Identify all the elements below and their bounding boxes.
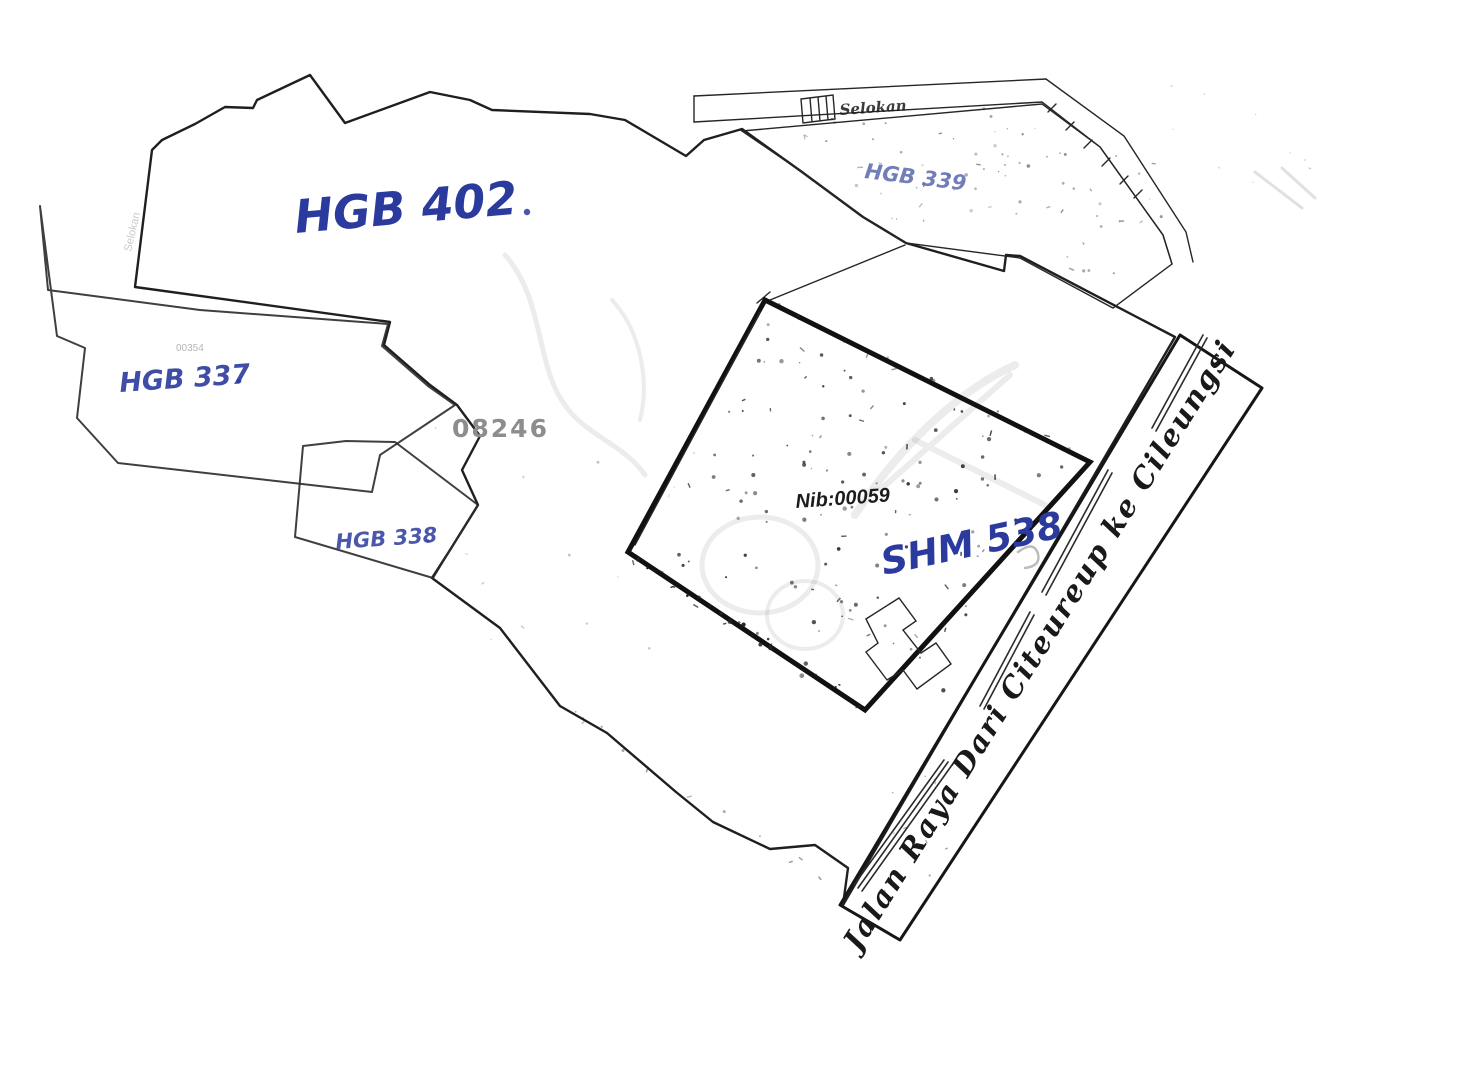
parcel-shm538-corner-accent [635, 292, 770, 545]
parcel-label-hgb402: HGB 402 [292, 171, 519, 244]
map-labels: HGB 402 HGB 339 00354 HGB 337 HGB 338 SH… [118, 96, 1243, 960]
map-canvas: HGB 402 HGB 339 00354 HGB 337 HGB 338 SH… [0, 0, 1464, 1080]
parcel-label-hgb339: HGB 339 [863, 159, 967, 195]
parcel-hgb338-boundary [295, 441, 478, 578]
canal-label: Selokan [839, 96, 907, 119]
road-edge-dashes [854, 335, 1207, 891]
parcel-code-hgb337: 00354 [176, 343, 204, 354]
scanned-cadastral-map: HGB 402 HGB 339 00354 HGB 337 HGB 338 SH… [0, 0, 1464, 1080]
building-footprint [866, 598, 951, 689]
parcel-hgb337-boundary [40, 206, 455, 492]
parcel-nib-number: Nib:00059 [795, 484, 892, 513]
stray-ink-dots [237, 209, 531, 543]
parcel-label-hgb338: HGB 338 [335, 523, 438, 554]
canal-ladder-symbol [801, 95, 835, 123]
parcel-hgb402-inner-line [770, 245, 905, 300]
road-name-label: Jalan Raya Dari Citeureup ke Cileungsi [833, 333, 1242, 960]
parcel-hgb339-boundary [742, 104, 1172, 308]
parcel-label-hgb337: HGB 337 [118, 359, 251, 399]
plot-code-08246: 08246 [452, 414, 549, 443]
